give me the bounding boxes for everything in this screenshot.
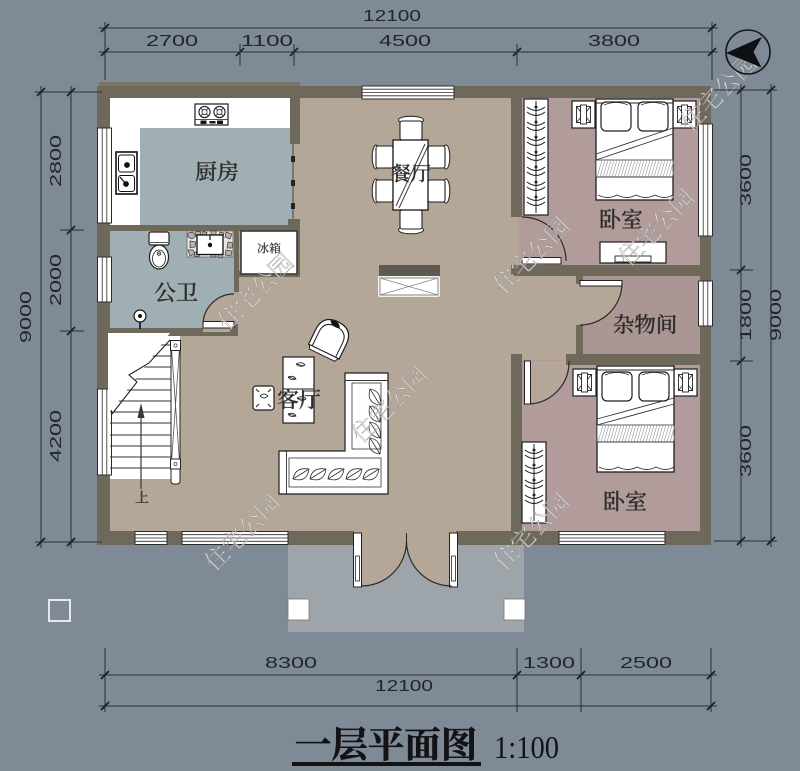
svg-text:9000: 9000 bbox=[768, 288, 785, 341]
svg-text:1100: 1100 bbox=[241, 33, 294, 50]
svg-text:4500: 4500 bbox=[379, 33, 432, 50]
svg-text:1300: 1300 bbox=[523, 655, 576, 672]
svg-text:12100: 12100 bbox=[363, 8, 422, 25]
svg-text:3800: 3800 bbox=[588, 33, 641, 50]
svg-text:12100: 12100 bbox=[375, 678, 434, 695]
svg-text:2700: 2700 bbox=[146, 33, 199, 50]
svg-text:2000: 2000 bbox=[48, 253, 65, 306]
svg-text:3600: 3600 bbox=[738, 424, 755, 477]
svg-text:9000: 9000 bbox=[18, 290, 35, 343]
svg-text:2800: 2800 bbox=[48, 134, 65, 187]
svg-text:3600: 3600 bbox=[738, 153, 755, 206]
svg-text:8300: 8300 bbox=[265, 655, 318, 672]
svg-text:2500: 2500 bbox=[620, 655, 673, 672]
svg-text:1:100: 1:100 bbox=[494, 729, 559, 765]
svg-text:1800: 1800 bbox=[738, 288, 755, 341]
svg-text:4200: 4200 bbox=[48, 409, 65, 462]
